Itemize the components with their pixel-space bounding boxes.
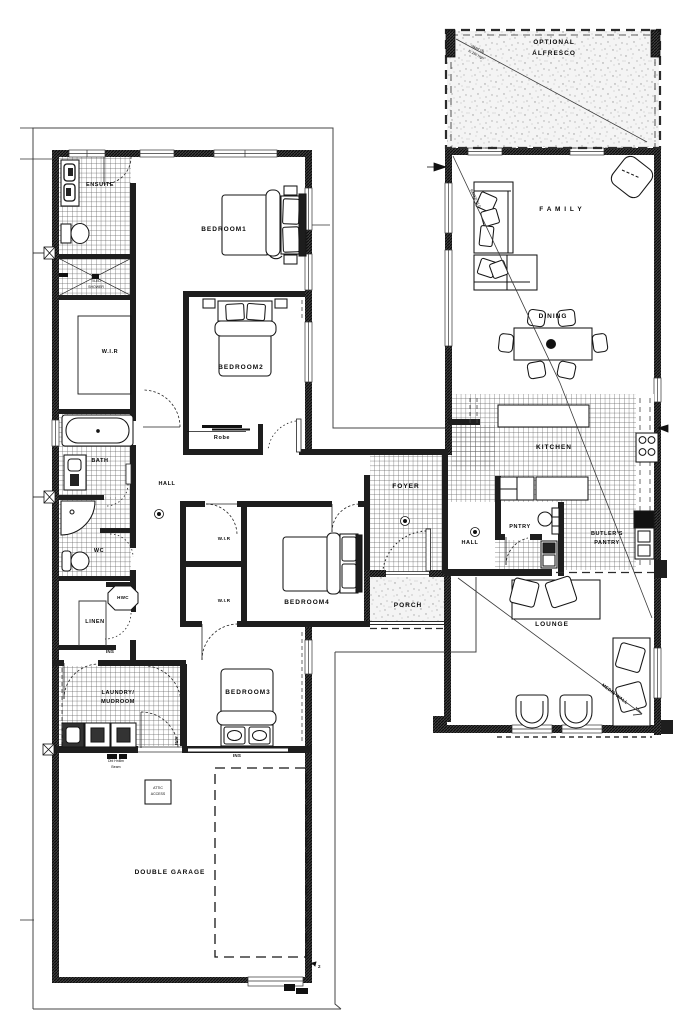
svg-text:Dbl HnBm: Dbl HnBm (108, 759, 124, 763)
svg-text:MUDROOM: MUDROOM (101, 699, 135, 705)
svg-text:ACCESS: ACCESS (151, 792, 166, 796)
svg-text:BATH: BATH (91, 458, 108, 464)
svg-text:TILED: TILED (91, 279, 101, 283)
svg-text:LAUNDRY/: LAUNDRY/ (101, 690, 134, 696)
svg-text:KITCHEN: KITCHEN (536, 444, 572, 451)
svg-text:ALFRESCO: ALFRESCO (532, 50, 576, 57)
svg-text:F A M I L Y: F A M I L Y (539, 206, 583, 213)
svg-text:Beam: Beam (111, 765, 120, 769)
svg-text:Robe: Robe (214, 435, 230, 441)
svg-text:SHOWER: SHOWER (88, 285, 104, 289)
svg-text:ATTIC: ATTIC (153, 786, 163, 790)
svg-text:BEDROOM3: BEDROOM3 (225, 689, 271, 696)
svg-text:OPTIONAL: OPTIONAL (533, 39, 575, 46)
svg-text:PANTRY: PANTRY (594, 540, 620, 546)
svg-text:PNTRY: PNTRY (509, 524, 530, 530)
svg-text:DOUBLE GARAGE: DOUBLE GARAGE (135, 869, 206, 876)
svg-text:HWC: HWC (117, 595, 129, 600)
svg-text:W.I.R: W.I.R (102, 349, 118, 355)
svg-text:W.I.R: W.I.R (218, 598, 231, 603)
svg-text:ENSUITE: ENSUITE (86, 182, 114, 188)
svg-text:HALL: HALL (461, 540, 478, 546)
svg-text:LINEN: LINEN (85, 619, 105, 625)
svg-text:INS: INS (106, 649, 114, 654)
svg-text:W.I.R: W.I.R (218, 536, 231, 541)
svg-text:HALL: HALL (158, 481, 175, 487)
svg-text:2: 2 (318, 964, 321, 969)
svg-text:INS: INS (233, 753, 241, 758)
svg-text:PORCH: PORCH (394, 602, 422, 609)
svg-text:LOUNGE: LOUNGE (535, 621, 569, 628)
svg-text:BEDROOM2: BEDROOM2 (218, 364, 264, 371)
svg-text:WC: WC (94, 548, 104, 554)
svg-text:BEDROOM1: BEDROOM1 (201, 226, 247, 233)
svg-text:BUTLER'S: BUTLER'S (591, 531, 623, 537)
svg-text:BEDROOM4: BEDROOM4 (284, 599, 330, 606)
svg-text:INS: INS (174, 737, 179, 745)
svg-text:FOYER: FOYER (392, 483, 419, 490)
svg-text:DINING: DINING (539, 313, 568, 320)
